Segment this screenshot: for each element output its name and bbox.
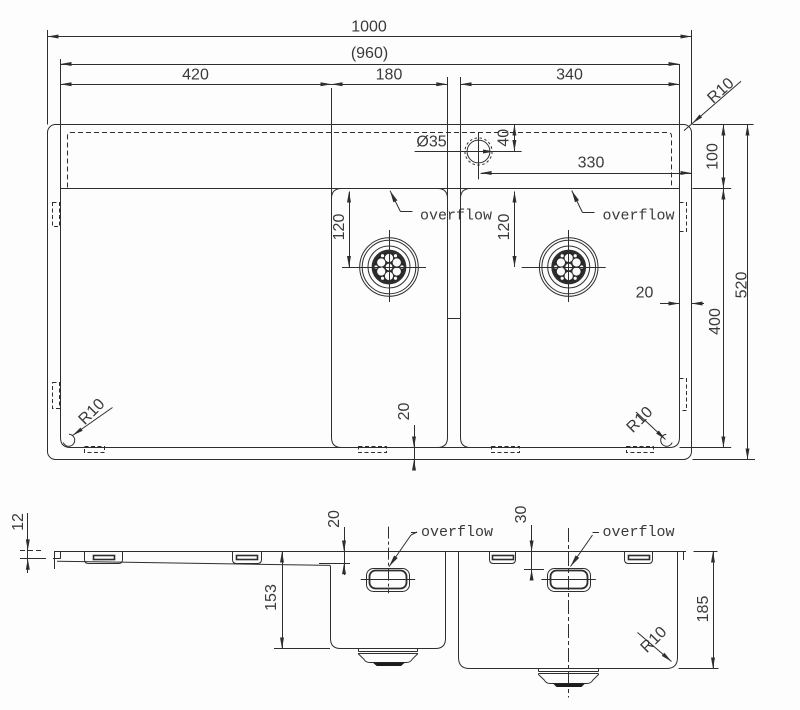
svg-text:100: 100 <box>705 143 722 170</box>
svg-text:1000: 1000 <box>351 19 387 36</box>
svg-text:420: 420 <box>182 67 209 84</box>
svg-text:20: 20 <box>326 510 343 528</box>
svg-text:40: 40 <box>496 129 513 147</box>
svg-text:20: 20 <box>636 285 654 302</box>
svg-text:30: 30 <box>513 506 530 524</box>
svg-text:330: 330 <box>578 155 605 172</box>
svg-text:(960): (960) <box>351 45 388 62</box>
svg-text:overflow: overflow <box>420 208 492 225</box>
svg-text:overflow: overflow <box>603 524 675 541</box>
svg-text:Ø35: Ø35 <box>416 134 446 151</box>
svg-text:20: 20 <box>396 403 413 421</box>
svg-text:120: 120 <box>496 214 513 241</box>
svg-text:overflow: overflow <box>421 524 493 541</box>
svg-text:520: 520 <box>734 272 751 299</box>
svg-text:153: 153 <box>263 584 280 611</box>
svg-text:340: 340 <box>556 67 583 84</box>
svg-text:180: 180 <box>376 67 403 84</box>
svg-text:12: 12 <box>10 513 27 531</box>
svg-text:overflow: overflow <box>603 208 675 225</box>
svg-text:120: 120 <box>331 214 348 241</box>
svg-text:400: 400 <box>707 308 724 335</box>
svg-text:185: 185 <box>695 596 712 623</box>
